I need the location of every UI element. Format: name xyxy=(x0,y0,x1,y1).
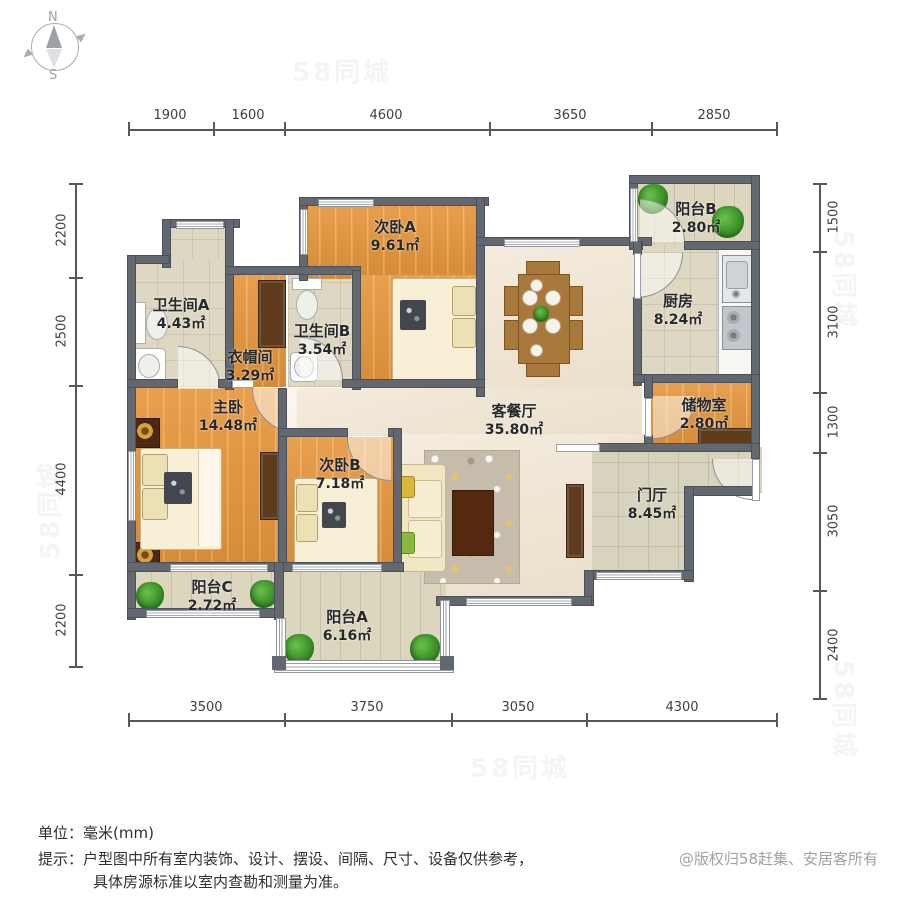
plate xyxy=(530,279,543,292)
railing-post xyxy=(440,656,454,670)
dining-chair xyxy=(568,320,583,350)
room-area: 4.43㎡ xyxy=(153,315,210,334)
dim-right-2: 3100 xyxy=(827,305,842,338)
room-name: 次卧B xyxy=(316,456,365,475)
room-label-master-bedroom: 主卧 14.48㎡ xyxy=(199,398,257,436)
tick xyxy=(69,183,83,185)
dim-left-2: 2500 xyxy=(55,314,70,347)
stove-burner xyxy=(727,329,740,342)
room-label-storage: 储物室 2.80㎡ xyxy=(680,396,729,434)
room-area: 8.24㎡ xyxy=(654,311,703,330)
tick xyxy=(69,277,83,279)
dining-chair xyxy=(504,286,519,316)
room-name: 卫生间B xyxy=(294,322,350,341)
wall xyxy=(225,266,361,275)
compass-needle-south xyxy=(46,49,62,68)
watermark: 58同城 xyxy=(292,52,392,89)
quilt xyxy=(322,502,346,528)
dim-right-3: 1300 xyxy=(827,405,842,438)
tv-cabinet xyxy=(566,484,584,558)
room-label-balcony-c: 阳台C 2.72㎡ xyxy=(188,578,237,616)
dim-top-1: 1900 xyxy=(153,108,186,123)
tick xyxy=(776,122,778,136)
tick xyxy=(813,251,827,253)
floorplan-page: N S 58同城 58同城 58同城 58同城 58同城 1900 1600 4… xyxy=(0,0,900,900)
wall xyxy=(598,443,760,452)
wall xyxy=(684,486,760,496)
window xyxy=(128,451,136,521)
room-label-foyer: 门厅 8.45㎡ xyxy=(628,486,677,524)
wall xyxy=(127,379,178,388)
dim-left-1: 2200 xyxy=(55,213,70,246)
wall xyxy=(352,270,361,390)
room-label-cloakroom: 衣帽间 3.29㎡ xyxy=(226,348,275,386)
tick xyxy=(284,122,286,136)
plate xyxy=(530,344,543,357)
room-label-balcony-a: 阳台A 6.16㎡ xyxy=(323,608,372,646)
wall xyxy=(644,374,653,398)
dim-bottom-2: 3750 xyxy=(350,700,383,715)
dim-top-4: 3650 xyxy=(553,108,586,123)
washbasin-bowl xyxy=(138,354,160,378)
room-area: 6.16㎡ xyxy=(323,627,372,646)
note-line2: 具体房源标准以室内查勘和测量为准。 xyxy=(93,871,348,892)
pillow xyxy=(296,484,318,512)
wall xyxy=(629,175,760,184)
bed-sheet xyxy=(198,450,219,546)
tick xyxy=(489,122,491,136)
dining-chair xyxy=(504,320,519,350)
dim-bottom-3: 3050 xyxy=(501,700,534,715)
room-area: 3.29㎡ xyxy=(226,367,275,386)
window xyxy=(504,239,580,247)
room-area: 2.72㎡ xyxy=(188,597,237,616)
compass-south-label: S xyxy=(49,68,57,83)
tick xyxy=(213,122,215,136)
dim-top-2: 1600 xyxy=(231,108,264,123)
door-leaf xyxy=(645,398,652,437)
threshold xyxy=(556,444,600,452)
dim-right-4: 3050 xyxy=(827,504,842,537)
dim-top-3: 4600 xyxy=(369,108,402,123)
plate xyxy=(522,290,538,306)
compass-north-label: N xyxy=(48,10,58,25)
dim-top-5: 2850 xyxy=(697,108,730,123)
dimension-line-top xyxy=(128,129,778,131)
wall xyxy=(751,374,760,452)
tick xyxy=(813,698,827,700)
note-line1: 提示：户型图中所有室内装饰、设计、摆设、间隔、尺寸、设备仅供参考， xyxy=(38,848,533,869)
pillow xyxy=(452,286,476,316)
tick xyxy=(284,713,286,727)
tick xyxy=(586,713,588,727)
window xyxy=(318,199,374,207)
tick xyxy=(128,122,130,136)
room-name: 主卧 xyxy=(199,398,257,417)
room-label-kitchen: 厨房 8.24㎡ xyxy=(654,292,703,330)
dim-right-1: 1500 xyxy=(827,200,842,233)
plate xyxy=(545,318,561,334)
tick xyxy=(69,385,83,387)
quilt xyxy=(400,300,426,330)
room-label-living-dining: 客餐厅 35.80㎡ xyxy=(485,402,543,440)
room-area: 3.54㎡ xyxy=(294,341,350,360)
tick xyxy=(69,666,83,668)
wall xyxy=(278,428,348,437)
plate xyxy=(545,290,561,306)
watermark: 58同城 xyxy=(827,660,864,760)
wall xyxy=(751,443,760,459)
dim-left-4: 2200 xyxy=(55,603,70,636)
window xyxy=(170,564,268,572)
dim-left-3: 4400 xyxy=(55,462,70,495)
sink-basin xyxy=(726,261,748,289)
tick xyxy=(813,590,827,592)
pillow xyxy=(296,514,318,542)
window xyxy=(176,221,224,229)
compass: N S xyxy=(20,12,90,82)
copyright: @版权归58赶集、安居客所有 xyxy=(679,848,878,869)
tick xyxy=(776,713,778,727)
room-name: 客餐厅 xyxy=(485,402,543,421)
dining-chair xyxy=(568,286,583,316)
room-name: 次卧A xyxy=(371,218,420,237)
room-name: 卫生间A xyxy=(153,296,210,315)
room-area: 2.80㎡ xyxy=(680,415,729,434)
tick xyxy=(651,122,653,136)
window xyxy=(466,598,572,606)
room-label-bathroom-a: 卫生间A 4.43㎡ xyxy=(153,296,210,334)
dimension-line-bottom xyxy=(128,720,778,722)
wardrobe xyxy=(260,452,280,520)
railing-post xyxy=(272,656,286,670)
tick xyxy=(69,574,83,576)
dining-chair xyxy=(526,362,560,377)
room-name: 阳台B xyxy=(672,200,721,219)
lamp xyxy=(136,422,154,440)
room-name: 储物室 xyxy=(680,396,729,415)
room-label-bedroom-a: 次卧A 9.61㎡ xyxy=(371,218,420,256)
room-area: 14.48㎡ xyxy=(199,417,257,436)
room-area: 9.61㎡ xyxy=(371,237,420,256)
room-area: 8.45㎡ xyxy=(628,505,677,524)
wall xyxy=(278,388,287,572)
tick xyxy=(128,713,130,727)
room-name: 厨房 xyxy=(654,292,703,311)
wall xyxy=(476,197,485,397)
room-area: 35.80㎡ xyxy=(485,421,543,440)
window xyxy=(300,209,308,255)
wall xyxy=(393,428,402,572)
faucet xyxy=(732,290,740,298)
door-leaf xyxy=(634,253,641,299)
window xyxy=(292,564,382,572)
dimension-line-right xyxy=(819,183,821,700)
room-name: 门厅 xyxy=(628,486,677,505)
unit-label: 单位：毫米(mm) xyxy=(38,822,154,843)
wall xyxy=(684,486,694,582)
tick xyxy=(813,392,827,394)
room-label-bedroom-b: 次卧B 7.18㎡ xyxy=(316,456,365,494)
watermark: 58同城 xyxy=(470,748,570,785)
wall xyxy=(342,379,485,388)
balcony-railing xyxy=(274,660,454,673)
pillow xyxy=(452,318,476,348)
room-area: 7.18㎡ xyxy=(316,475,365,494)
wall xyxy=(751,175,760,386)
window xyxy=(596,572,682,580)
tick xyxy=(813,452,827,454)
room-name: 衣帽间 xyxy=(226,348,275,367)
toilet-bowl xyxy=(296,290,318,320)
room-area: 2.80㎡ xyxy=(672,219,721,238)
dimension-line-left xyxy=(75,183,77,668)
compass-needle-north xyxy=(46,25,62,48)
wardrobe xyxy=(258,280,286,348)
wall xyxy=(633,297,642,386)
dim-bottom-1: 3500 xyxy=(189,700,222,715)
stove-burner xyxy=(727,311,740,324)
tick xyxy=(451,713,453,727)
window xyxy=(630,188,638,242)
tick xyxy=(813,183,827,185)
room-name: 阳台C xyxy=(188,578,237,597)
room-label-balcony-b: 阳台B 2.80㎡ xyxy=(672,200,721,238)
coffee-table xyxy=(452,490,494,556)
room-label-bathroom-b: 卫生间B 3.54㎡ xyxy=(294,322,350,360)
room-name: 阳台A xyxy=(323,608,372,627)
door-leaf xyxy=(752,459,760,501)
quilt xyxy=(164,472,192,504)
wall xyxy=(274,562,284,620)
dim-bottom-4: 4300 xyxy=(665,700,698,715)
wall xyxy=(684,241,760,250)
dim-right-5: 2400 xyxy=(827,628,842,661)
